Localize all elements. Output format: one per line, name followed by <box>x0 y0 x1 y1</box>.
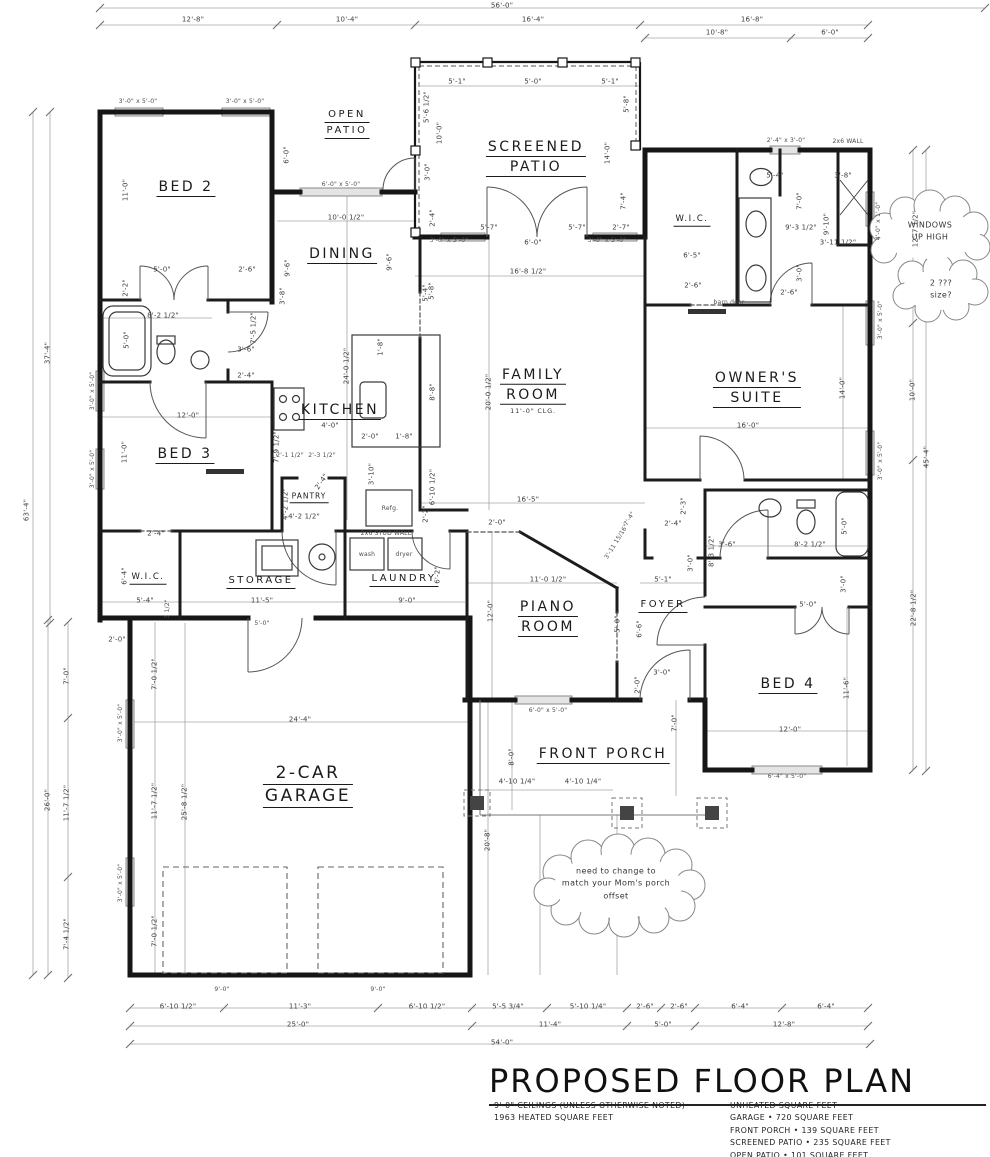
dim-label: 6'-0" <box>524 240 542 247</box>
dim-label: 5'-1" <box>654 577 672 584</box>
room-label-line: FOYER <box>639 600 688 613</box>
dim-label: 1'-8" <box>378 338 385 356</box>
room-label-line: BED 3 <box>155 447 214 464</box>
dim-label: 16'-8" <box>741 17 763 24</box>
room-label-line: SCREENED <box>486 140 586 157</box>
dim-label: 5'-0" <box>615 615 622 633</box>
dim-label: 24'-4" <box>289 717 311 724</box>
cloud-note-porch-offset-note: need to change tomatch your Mom's porcho… <box>562 865 670 902</box>
cloud-note-line: UP HIGH <box>908 232 953 244</box>
dim-label: 2'-7" <box>612 225 630 232</box>
title-block-note: SCREENED PATIO • 235 SQUARE FEET <box>730 1137 891 1149</box>
dim-label: 3'-8" <box>280 287 287 305</box>
dim-label: barn door <box>714 300 745 306</box>
dim-label: 2'-0" <box>108 637 126 644</box>
room-sublabel: 11'-0" CLG. <box>500 408 566 415</box>
room-label-kitchen: KITCHEN <box>299 403 381 423</box>
dim-label: 45'-4" <box>924 446 931 468</box>
dim-label: 3'-6" <box>718 542 736 549</box>
dim-label: 11'-6" <box>844 677 851 699</box>
dim-label: 6'-4" <box>122 567 129 585</box>
dim-label: 4'-10 1/4" <box>499 779 536 786</box>
dim-label: 5'-6 1/2" <box>424 91 431 123</box>
room-label-line: PANTRY <box>290 492 329 503</box>
dim-label: 3'-0" <box>797 264 804 282</box>
dim-label: 5'-0" <box>124 331 131 349</box>
dim-label: 2x6 WALL <box>832 139 863 145</box>
dim-label: 9'-0" <box>398 598 416 605</box>
dim-label: 1'-8" <box>395 434 413 441</box>
dim-label: 3'-0" <box>841 575 848 593</box>
room-label-line: KITCHEN <box>299 403 381 420</box>
dim-label: 3'-6" <box>237 347 255 354</box>
room-label-line: ROOM <box>500 388 566 405</box>
dim-label: 2'-6" <box>636 1004 654 1011</box>
dim-label: 54'-0" <box>491 1040 513 1047</box>
dim-label: 6'-0" x 5'-0" <box>529 708 567 714</box>
dim-label: 10'-0" <box>910 379 917 401</box>
dim-label: 12'-0" <box>177 413 199 420</box>
dim-label: 10'-4" <box>336 17 358 24</box>
dim-label: 37'-4" <box>45 342 52 364</box>
room-label-bed-3: BED 3 <box>155 447 214 467</box>
room-label-open-patio: OPENPATIO <box>325 110 370 142</box>
dim-label: 3'-0" x 5'-0" <box>118 864 124 902</box>
dim-label: 6'-0" x 5'-0" <box>322 182 360 188</box>
dim-label: 5'-7" <box>480 225 498 232</box>
cloud-note-line: 2 ??? <box>930 278 952 290</box>
cloud-note-window-size-question: 2 ???size? <box>930 278 952 303</box>
title-block-note: 1963 HEATED SQUARE FEET <box>494 1112 685 1124</box>
room-label-pantry: PANTRY <box>290 492 329 506</box>
room-label-garage: 2-CARGARAGE <box>263 765 353 811</box>
dim-label: 3'-0" <box>688 554 695 572</box>
dim-label: 2'-3" <box>681 497 688 515</box>
room-label-storage: STORAGE <box>226 576 295 592</box>
dim-label: 11'-0" <box>123 179 130 201</box>
dim-label: 2'-0" <box>635 676 642 694</box>
dim-label: 2'-4" <box>430 209 437 227</box>
dim-label: 4'-0" x 1'-0" <box>876 202 882 240</box>
dim-label: 6'-6" <box>637 620 644 638</box>
dim-label: 2'-2" <box>123 279 130 297</box>
dim-label: 56'-0" <box>491 3 513 10</box>
dim-label: 5'-1" <box>448 79 466 86</box>
dim-label: 25'-0" <box>287 1022 309 1029</box>
dim-label: 8'-3 1/2" <box>709 535 716 567</box>
dim-label: 12'-8" <box>773 1022 795 1029</box>
dim-label: 6'-0" <box>284 146 291 164</box>
dim-label: wash <box>359 552 375 558</box>
room-label-wic-owners: W.I.C. <box>674 215 711 230</box>
room-label-line: PATIO <box>486 160 586 177</box>
dim-label: 5'-0" <box>254 621 269 627</box>
dim-label: 10'-0" <box>437 122 444 144</box>
dim-label: 3'-0" x 5'-0" <box>226 99 264 105</box>
dim-label: Refg. <box>382 506 398 512</box>
room-label-line: OWNER'S <box>713 371 801 388</box>
dim-label: 4'-10 1/4" <box>565 779 602 786</box>
dim-label: 11'-5" <box>251 598 273 605</box>
dim-label: 5'-0" <box>842 517 849 535</box>
dim-label: 6'-5" <box>683 253 701 260</box>
dim-label: 5'-0" <box>153 267 171 274</box>
dim-label: 2'-6" <box>684 283 702 290</box>
dim-label: 14'-0" <box>605 142 612 164</box>
dim-label: 7'-0" <box>672 714 679 732</box>
room-label-owners-suite: OWNER'SSUITE <box>713 371 801 411</box>
dim-label: 9'-6" <box>285 259 292 277</box>
dim-label: 3'-8" <box>834 173 852 180</box>
dim-label: 6'-0" <box>821 30 839 37</box>
dim-label: 7'-4" <box>621 192 628 210</box>
dim-label: 2'-0" <box>361 434 379 441</box>
dim-label: 3'-0" x 5'-0" <box>118 704 124 742</box>
room-label-line: BED 2 <box>156 180 215 197</box>
cloud-note-line: WINDOWS <box>908 220 953 232</box>
unheated-area-notes: UNHEATED SQUARE FEETGARAGE • 720 SQUARE … <box>730 1100 891 1157</box>
dim-label: 16'-8 1/2" <box>510 269 547 276</box>
dim-label: 6'-4" <box>731 1004 749 1011</box>
dim-label: 11'-7 1/2" <box>64 785 71 822</box>
dim-label: 4'-2 1/2" <box>288 514 320 521</box>
room-label-line: STORAGE <box>226 576 295 589</box>
dim-label: 3'-0" x 5'-0" <box>588 238 626 244</box>
dim-label: 2'-4" <box>237 373 255 380</box>
ceiling-notes: 9'-0" CEILINGS (UNLESS OTHERWISE NOTED)1… <box>494 1100 685 1125</box>
room-label-line: FRONT PORCH <box>537 747 670 764</box>
dim-label: 12'-0" <box>488 600 495 622</box>
dim-label: 7'-0 1/2" <box>152 658 159 690</box>
dim-label: 7'-0" <box>64 667 71 685</box>
dim-label: 3'-0" x 5'-0" <box>878 301 884 339</box>
room-label-line: W.I.C. <box>130 573 167 585</box>
room-label-wic-left: W.I.C. <box>130 573 167 588</box>
room-label-foyer: FOYER <box>639 600 688 616</box>
cloud-note-windows-up-high: WINDOWSUP HIGH <box>908 220 953 245</box>
dim-label: 8'-2 1/2" <box>147 313 179 320</box>
dim-label: 3'-0" x 5'-0" <box>119 99 157 105</box>
dim-label: 11'-0" <box>122 441 129 463</box>
dim-label: 20'-0 1/2" <box>486 374 493 411</box>
dim-label: 4'-0" <box>321 423 339 430</box>
dim-label: 3'-0" x 5'-0" <box>878 442 884 480</box>
room-label-line: PATIO <box>325 126 370 139</box>
dim-label: 12'-8" <box>182 17 204 24</box>
dim-label: 14'-0" <box>840 377 847 399</box>
dim-label: 5'-4" <box>136 598 154 605</box>
room-label-line: LAUNDRY <box>369 574 438 587</box>
dim-label: 9'-6" <box>387 253 394 271</box>
dim-label: 11'-7 1/2" <box>152 783 159 820</box>
dim-label: 24'-0 1/2" <box>344 348 351 385</box>
dim-label: 9'-10" <box>824 213 831 235</box>
dim-label: 8'-2 1/2" <box>794 542 826 549</box>
room-label-bed-4: BED 4 <box>758 677 817 697</box>
dim-label: 3'-0" x 5'-0" <box>90 450 96 488</box>
dim-label: 63'-4" <box>24 499 31 521</box>
dim-label: 5'-5 3/4" <box>492 1004 524 1011</box>
dim-label: 5'-0" <box>654 1022 672 1029</box>
dim-label: 25'-8 1/2" <box>182 784 189 821</box>
room-label-screened-patio: SCREENEDPATIO <box>486 140 586 180</box>
title-block-note: UNHEATED SQUARE FEET <box>730 1100 891 1112</box>
room-label-line: DINING <box>307 247 377 264</box>
room-label-line: SUITE <box>713 391 801 408</box>
cloud-note-line: need to change to <box>562 865 670 877</box>
dim-label: 2'-4" x 3'-0" <box>767 138 805 144</box>
dim-label: dryer <box>396 552 413 558</box>
room-label-line: OPEN <box>325 110 370 123</box>
dim-label: 2'-0" <box>488 520 506 527</box>
dim-label: 6'-4" <box>817 1004 835 1011</box>
dim-label: 5'-4" <box>423 284 430 302</box>
dim-label: 6'-4" x 5'-0" <box>768 774 806 780</box>
dim-label: 26'-0" <box>45 789 52 811</box>
dim-label: 11'-3" <box>289 1004 311 1011</box>
title-block-note: FRONT PORCH • 139 SQUARE FEET <box>730 1125 891 1137</box>
cloud-note-line: offset <box>562 890 670 902</box>
dim-label: 2'-6" <box>670 1004 688 1011</box>
dim-label: 7'-0" <box>797 192 804 210</box>
room-label-bed-2: BED 2 <box>156 180 215 200</box>
dim-label: 7'-0 1/2" <box>152 915 159 947</box>
dim-label: 12'-0" <box>779 727 801 734</box>
dim-label: 2'-3 1/2" <box>308 453 336 459</box>
room-label-line: 2-CAR <box>263 765 353 785</box>
dim-label: 2'-4" <box>147 531 165 538</box>
garage-doors-layer <box>163 867 443 973</box>
title-block-note: OPEN PATIO • 101 SQUARE FEET <box>730 1150 891 1157</box>
dim-label: 3'-11 1/2" <box>820 240 857 247</box>
floorplan-sheet: 56'-0"12'-8"10'-4"16'-4"16'-8"10'-8"6'-0… <box>0 0 990 1157</box>
dim-label: 6'-10 1/2" <box>409 1004 446 1011</box>
dim-label: 11'-0 1/2" <box>530 577 567 584</box>
dim-label: 3'-0" x 5'-0" <box>90 372 96 410</box>
dim-label: 16'-5" <box>517 497 539 504</box>
dim-label: 9'-0" <box>370 987 385 993</box>
dim-label: 9'-0" <box>214 987 229 993</box>
title-block-note: 9'-0" CEILINGS (UNLESS OTHERWISE NOTED) <box>494 1100 685 1112</box>
room-label-piano-room: PIANOROOM <box>518 600 578 640</box>
dim-label: 5'-8" <box>624 95 631 113</box>
room-label-line: PIANO <box>518 600 578 617</box>
dim-label: 6'-10 1/2" <box>160 1004 197 1011</box>
dim-label: 2x6 STUD WALL <box>361 531 411 537</box>
room-label-line: FAMILY <box>500 368 566 385</box>
dim-label: 2'-6" <box>238 267 256 274</box>
dim-label: 22'-8 1/2" <box>911 590 918 627</box>
dim-label: 10'-8" <box>706 30 728 37</box>
room-label-line: ROOM <box>518 620 578 637</box>
room-label-line: W.I.C. <box>674 215 711 227</box>
dim-label: 8'-8" <box>430 383 437 401</box>
dim-label: 5'-0" <box>799 602 817 609</box>
cloud-note-line: size? <box>930 290 952 302</box>
room-label-family-room: FAMILYROOM11'-0" CLG. <box>500 368 566 415</box>
dim-label: 3 1/2" <box>165 599 171 618</box>
room-label-line: BED 4 <box>758 677 817 694</box>
dim-label: 5'-8" <box>429 282 436 300</box>
dim-label: 3'-0" x 5'-0" <box>430 238 468 244</box>
dim-label: 11'-4" <box>539 1022 561 1029</box>
dim-label: 3'-0" <box>653 670 671 677</box>
dim-label: 16'-0" <box>737 423 759 430</box>
dim-label: 8'-0" <box>509 748 516 766</box>
dim-label: 5'-0" <box>524 79 542 86</box>
title-block-note: GARAGE • 720 SQUARE FEET <box>730 1112 891 1124</box>
dim-label: 20'-8" <box>485 829 492 851</box>
dim-label: 5'-1" <box>601 79 619 86</box>
room-label-line: GARAGE <box>263 788 353 808</box>
dim-label: 10'-0 1/2" <box>328 215 365 222</box>
dim-label: 7'-4 1/2" <box>64 918 71 950</box>
dim-label: 7'-5 1/2" <box>251 312 258 344</box>
dim-label: 6'-10 1/2" <box>430 469 437 506</box>
dim-label: 3'-10" <box>369 463 376 485</box>
dim-label: 5'-10 1/4" <box>570 1004 607 1011</box>
cloud-note-line: match your Mom's porch <box>562 878 670 890</box>
dim-label: 16'-4" <box>522 17 544 24</box>
dim-label: 3'-0" <box>425 163 432 181</box>
dim-label: 9'-3 1/2" <box>785 225 817 232</box>
dim-label: 2'-4" <box>664 521 682 528</box>
dim-label: 2'-2" <box>423 505 430 523</box>
room-label-laundry: LAUNDRY <box>369 574 438 590</box>
dim-label: 7'-9 1/2" <box>274 431 281 463</box>
room-label-dining: DINING <box>307 247 377 267</box>
dim-label: 5'-7" <box>568 225 586 232</box>
room-label-front-porch: FRONT PORCH <box>537 747 670 767</box>
dim-label: 5'-4" <box>766 173 784 180</box>
dim-label: 2'-6" <box>780 290 798 297</box>
